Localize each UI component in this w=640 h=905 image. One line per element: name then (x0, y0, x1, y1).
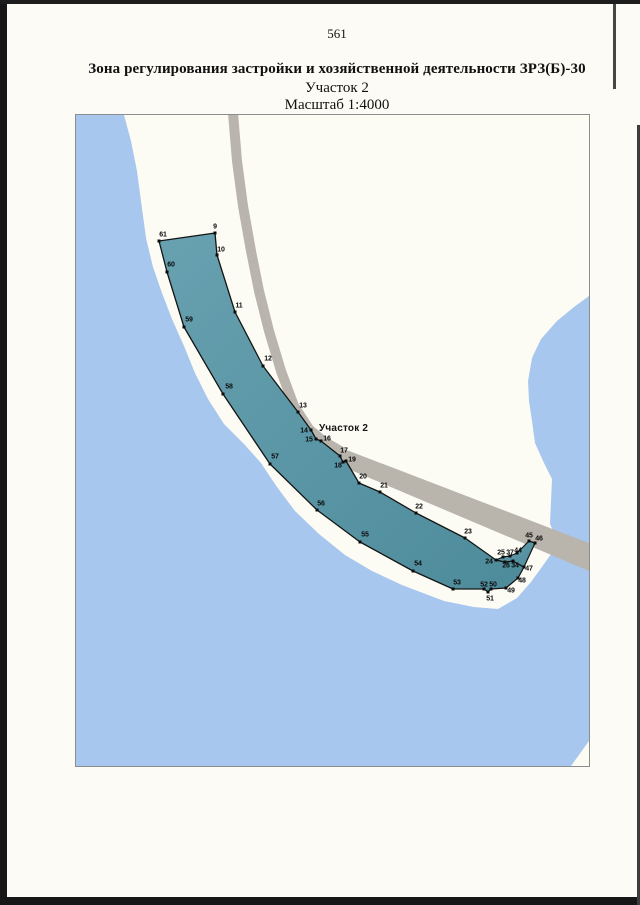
vertex-label: 20 (359, 474, 367, 481)
vertex-marker (166, 271, 169, 274)
vertex-marker (464, 537, 467, 540)
doc-scale: Масштаб 1:4000 (37, 97, 637, 114)
vertex-marker (315, 438, 318, 441)
vertex-marker (297, 411, 300, 414)
vertex-label: 17 (340, 448, 348, 455)
vertex-label: 50 (489, 582, 497, 589)
vertex-marker (379, 491, 382, 494)
vertex-label: 9 (213, 224, 217, 231)
vertex-label: 34 (511, 563, 519, 570)
vertex-marker (339, 455, 342, 458)
vertex-label: 26 (502, 563, 510, 570)
vertex-label: 44 (514, 548, 522, 555)
vertex-label: 53 (453, 580, 461, 587)
vertex-label: 22 (415, 504, 423, 511)
vertex-marker (214, 232, 217, 235)
vertex-marker (310, 429, 313, 432)
vertex-label: 51 (486, 596, 494, 603)
vertex-label: 52 (480, 582, 488, 589)
vertex-label: 10 (217, 247, 225, 254)
vertex-label: 13 (299, 403, 307, 410)
vertex-marker (216, 254, 219, 257)
doc-subtitle: Участок 2 (37, 80, 637, 97)
vertex-label: 55 (361, 532, 369, 539)
vertex-marker (412, 570, 415, 573)
vertex-label: 49 (507, 588, 515, 595)
vertex-marker (158, 240, 161, 243)
map-area-label: Участок 2 (319, 423, 368, 434)
vertex-label: 56 (317, 501, 325, 508)
doc-title: Зона регулирования застройки и хозяйстве… (37, 61, 637, 78)
vertex-label: 23 (464, 529, 472, 536)
vertex-label: 47 (525, 566, 533, 573)
vertex-marker (262, 365, 265, 368)
page-edge-top (0, 0, 640, 4)
vertex-marker (183, 326, 186, 329)
vertex-label: 11 (236, 303, 243, 310)
vertex-marker (415, 512, 418, 515)
vertex-marker (358, 482, 361, 485)
vertex-marker (234, 311, 237, 314)
vertex-label: 19 (348, 457, 356, 464)
vertex-label: 57 (271, 454, 279, 461)
vertex-label: 12 (264, 356, 272, 363)
vertex-marker (269, 463, 272, 466)
map-frame: Участок 2 910111213141516171819202122232… (75, 114, 590, 767)
vertex-label: 61 (159, 232, 167, 239)
vertex-label: 37 (506, 550, 514, 557)
page-edge-left (0, 0, 7, 905)
vertex-label: 24 (485, 559, 493, 566)
page-edge-bottom (0, 897, 640, 905)
vertex-label: 60 (167, 262, 175, 269)
vertex-label: 21 (380, 483, 388, 490)
vertex-marker (528, 540, 531, 543)
vertex-marker (222, 393, 225, 396)
vertex-label: 48 (518, 578, 526, 585)
vertex-marker (345, 460, 348, 463)
vertex-label: 25 (497, 550, 505, 557)
vertex-marker (495, 559, 498, 562)
vertex-marker (487, 591, 490, 594)
vertex-marker (320, 440, 323, 443)
vertex-label: 45 (525, 533, 533, 540)
vertex-marker (359, 541, 362, 544)
vertex-label: 59 (185, 317, 193, 324)
vertex-label: 58 (225, 384, 233, 391)
vertex-marker (342, 461, 345, 464)
vertex-label: 15 (305, 437, 313, 444)
map-canvas: Участок 2 910111213141516171819202122232… (76, 115, 589, 766)
vertex-label: 14 (300, 428, 308, 435)
vertex-label: 16 (323, 436, 331, 443)
page-number: 561 (37, 26, 637, 42)
vertex-label: 46 (535, 536, 543, 543)
vertex-label: 54 (414, 561, 422, 568)
vertex-marker (316, 509, 319, 512)
vertex-marker (452, 588, 455, 591)
vertex-label: 18 (334, 463, 342, 470)
